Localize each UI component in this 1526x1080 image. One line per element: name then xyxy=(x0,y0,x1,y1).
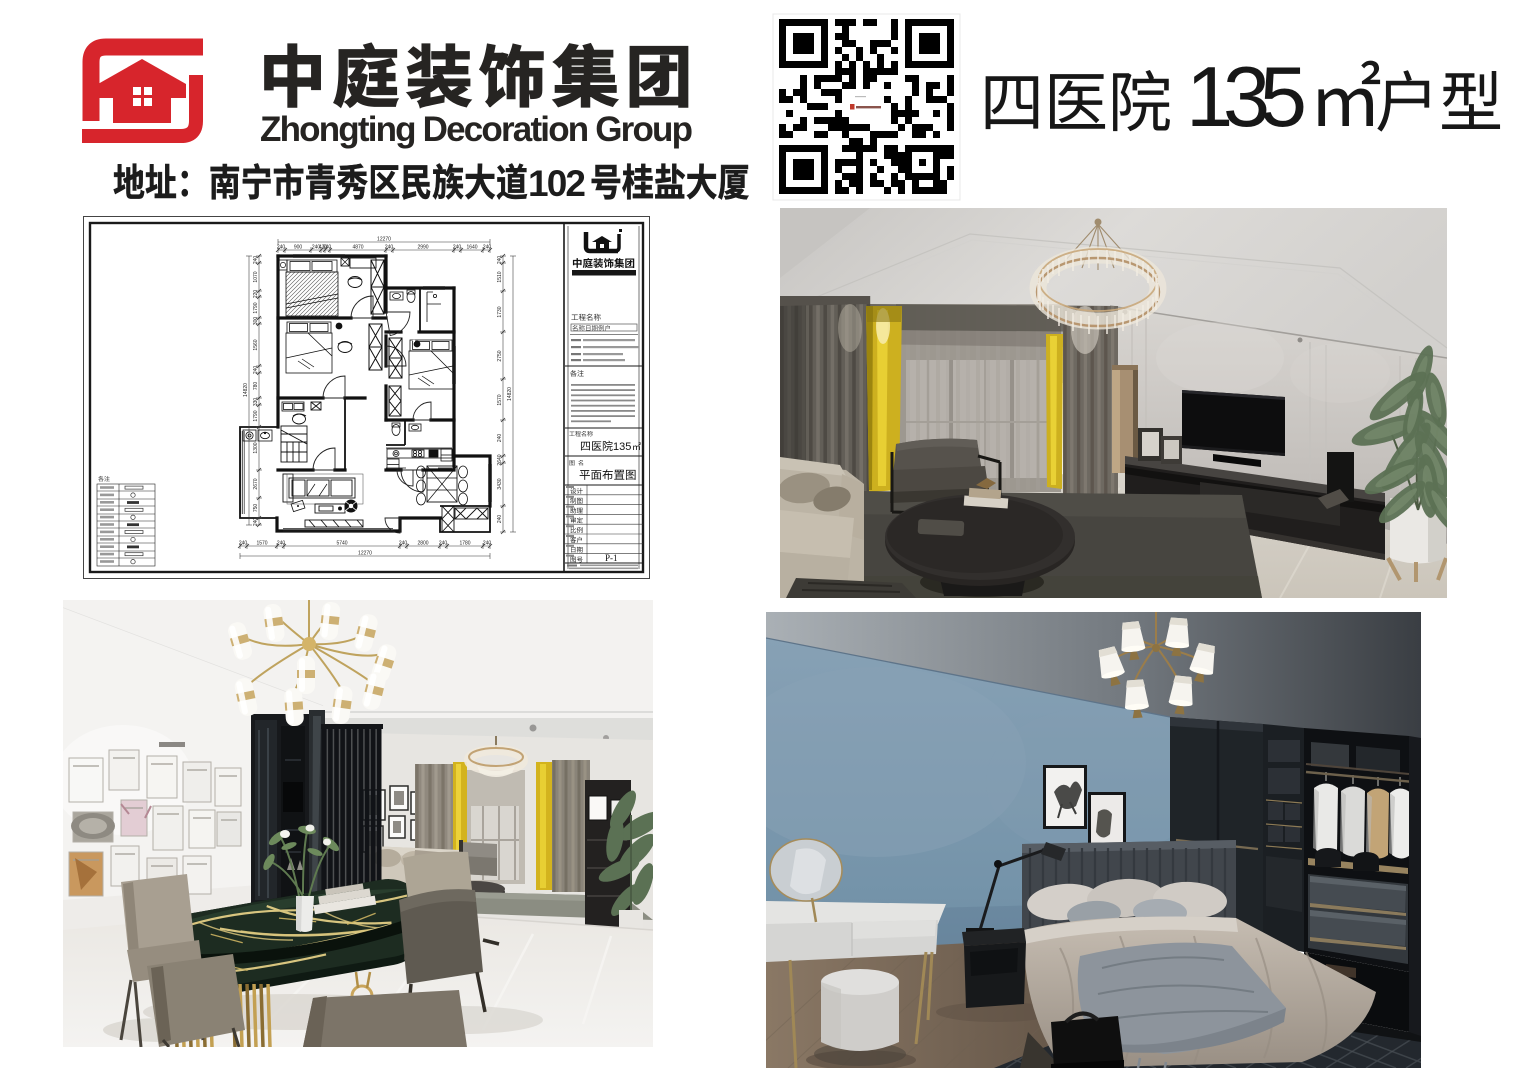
svg-text:Zhongting Decoration Group: Zhongting Decoration Group xyxy=(260,110,693,149)
svg-text:240: 240 xyxy=(453,245,462,251)
svg-text:2750: 2750 xyxy=(497,350,503,361)
svg-text:220: 220 xyxy=(253,290,259,299)
svg-text:12270: 12270 xyxy=(358,551,372,557)
svg-text:14820: 14820 xyxy=(507,387,513,401)
svg-text:135: 135 xyxy=(1186,50,1307,145)
svg-text:240: 240 xyxy=(253,366,259,375)
svg-text:240: 240 xyxy=(253,518,259,527)
svg-text:240: 240 xyxy=(497,256,503,265)
svg-text:1780: 1780 xyxy=(459,541,470,547)
svg-text:1070: 1070 xyxy=(253,271,259,282)
svg-text:240: 240 xyxy=(323,245,332,251)
svg-text:300: 300 xyxy=(253,317,259,326)
svg-text:1640: 1640 xyxy=(466,245,477,251)
svg-text:240: 240 xyxy=(497,515,503,524)
svg-text:900: 900 xyxy=(294,245,303,251)
svg-text:14820: 14820 xyxy=(243,383,249,397)
svg-text:330: 330 xyxy=(253,398,259,407)
svg-text:2800: 2800 xyxy=(417,541,428,547)
svg-text:1570: 1570 xyxy=(497,394,503,405)
svg-text:1560: 1560 xyxy=(253,339,259,350)
svg-text:4870: 4870 xyxy=(352,245,363,251)
svg-text:1570: 1570 xyxy=(256,541,267,547)
svg-text:1790: 1790 xyxy=(253,302,259,313)
svg-text:P-1: P-1 xyxy=(605,553,618,563)
svg-text:240: 240 xyxy=(399,541,408,547)
svg-text:102: 102 xyxy=(528,163,586,204)
svg-text:240: 240 xyxy=(483,245,492,251)
svg-text:135: 135 xyxy=(613,441,631,453)
svg-text:240: 240 xyxy=(483,541,492,547)
svg-text:1300: 1300 xyxy=(253,442,259,453)
svg-text:2990: 2990 xyxy=(417,245,428,251)
svg-text:240: 240 xyxy=(439,541,448,547)
svg-text:3430: 3430 xyxy=(497,478,503,489)
svg-text:1730: 1730 xyxy=(497,306,503,317)
svg-text:240: 240 xyxy=(239,541,248,547)
svg-text:240: 240 xyxy=(253,256,259,265)
svg-text:240: 240 xyxy=(497,434,503,443)
svg-text:240: 240 xyxy=(277,541,286,547)
svg-text:240: 240 xyxy=(385,245,394,251)
svg-text:750: 750 xyxy=(253,504,259,513)
svg-text:5740: 5740 xyxy=(336,541,347,547)
svg-text:2640: 2640 xyxy=(497,454,503,465)
svg-text:2670: 2670 xyxy=(253,478,259,489)
svg-text:780: 780 xyxy=(253,382,259,391)
svg-text:12270: 12270 xyxy=(377,237,391,243)
svg-text:240: 240 xyxy=(277,245,286,251)
svg-text:1790: 1790 xyxy=(253,410,259,421)
svg-text:1510: 1510 xyxy=(497,271,503,282)
